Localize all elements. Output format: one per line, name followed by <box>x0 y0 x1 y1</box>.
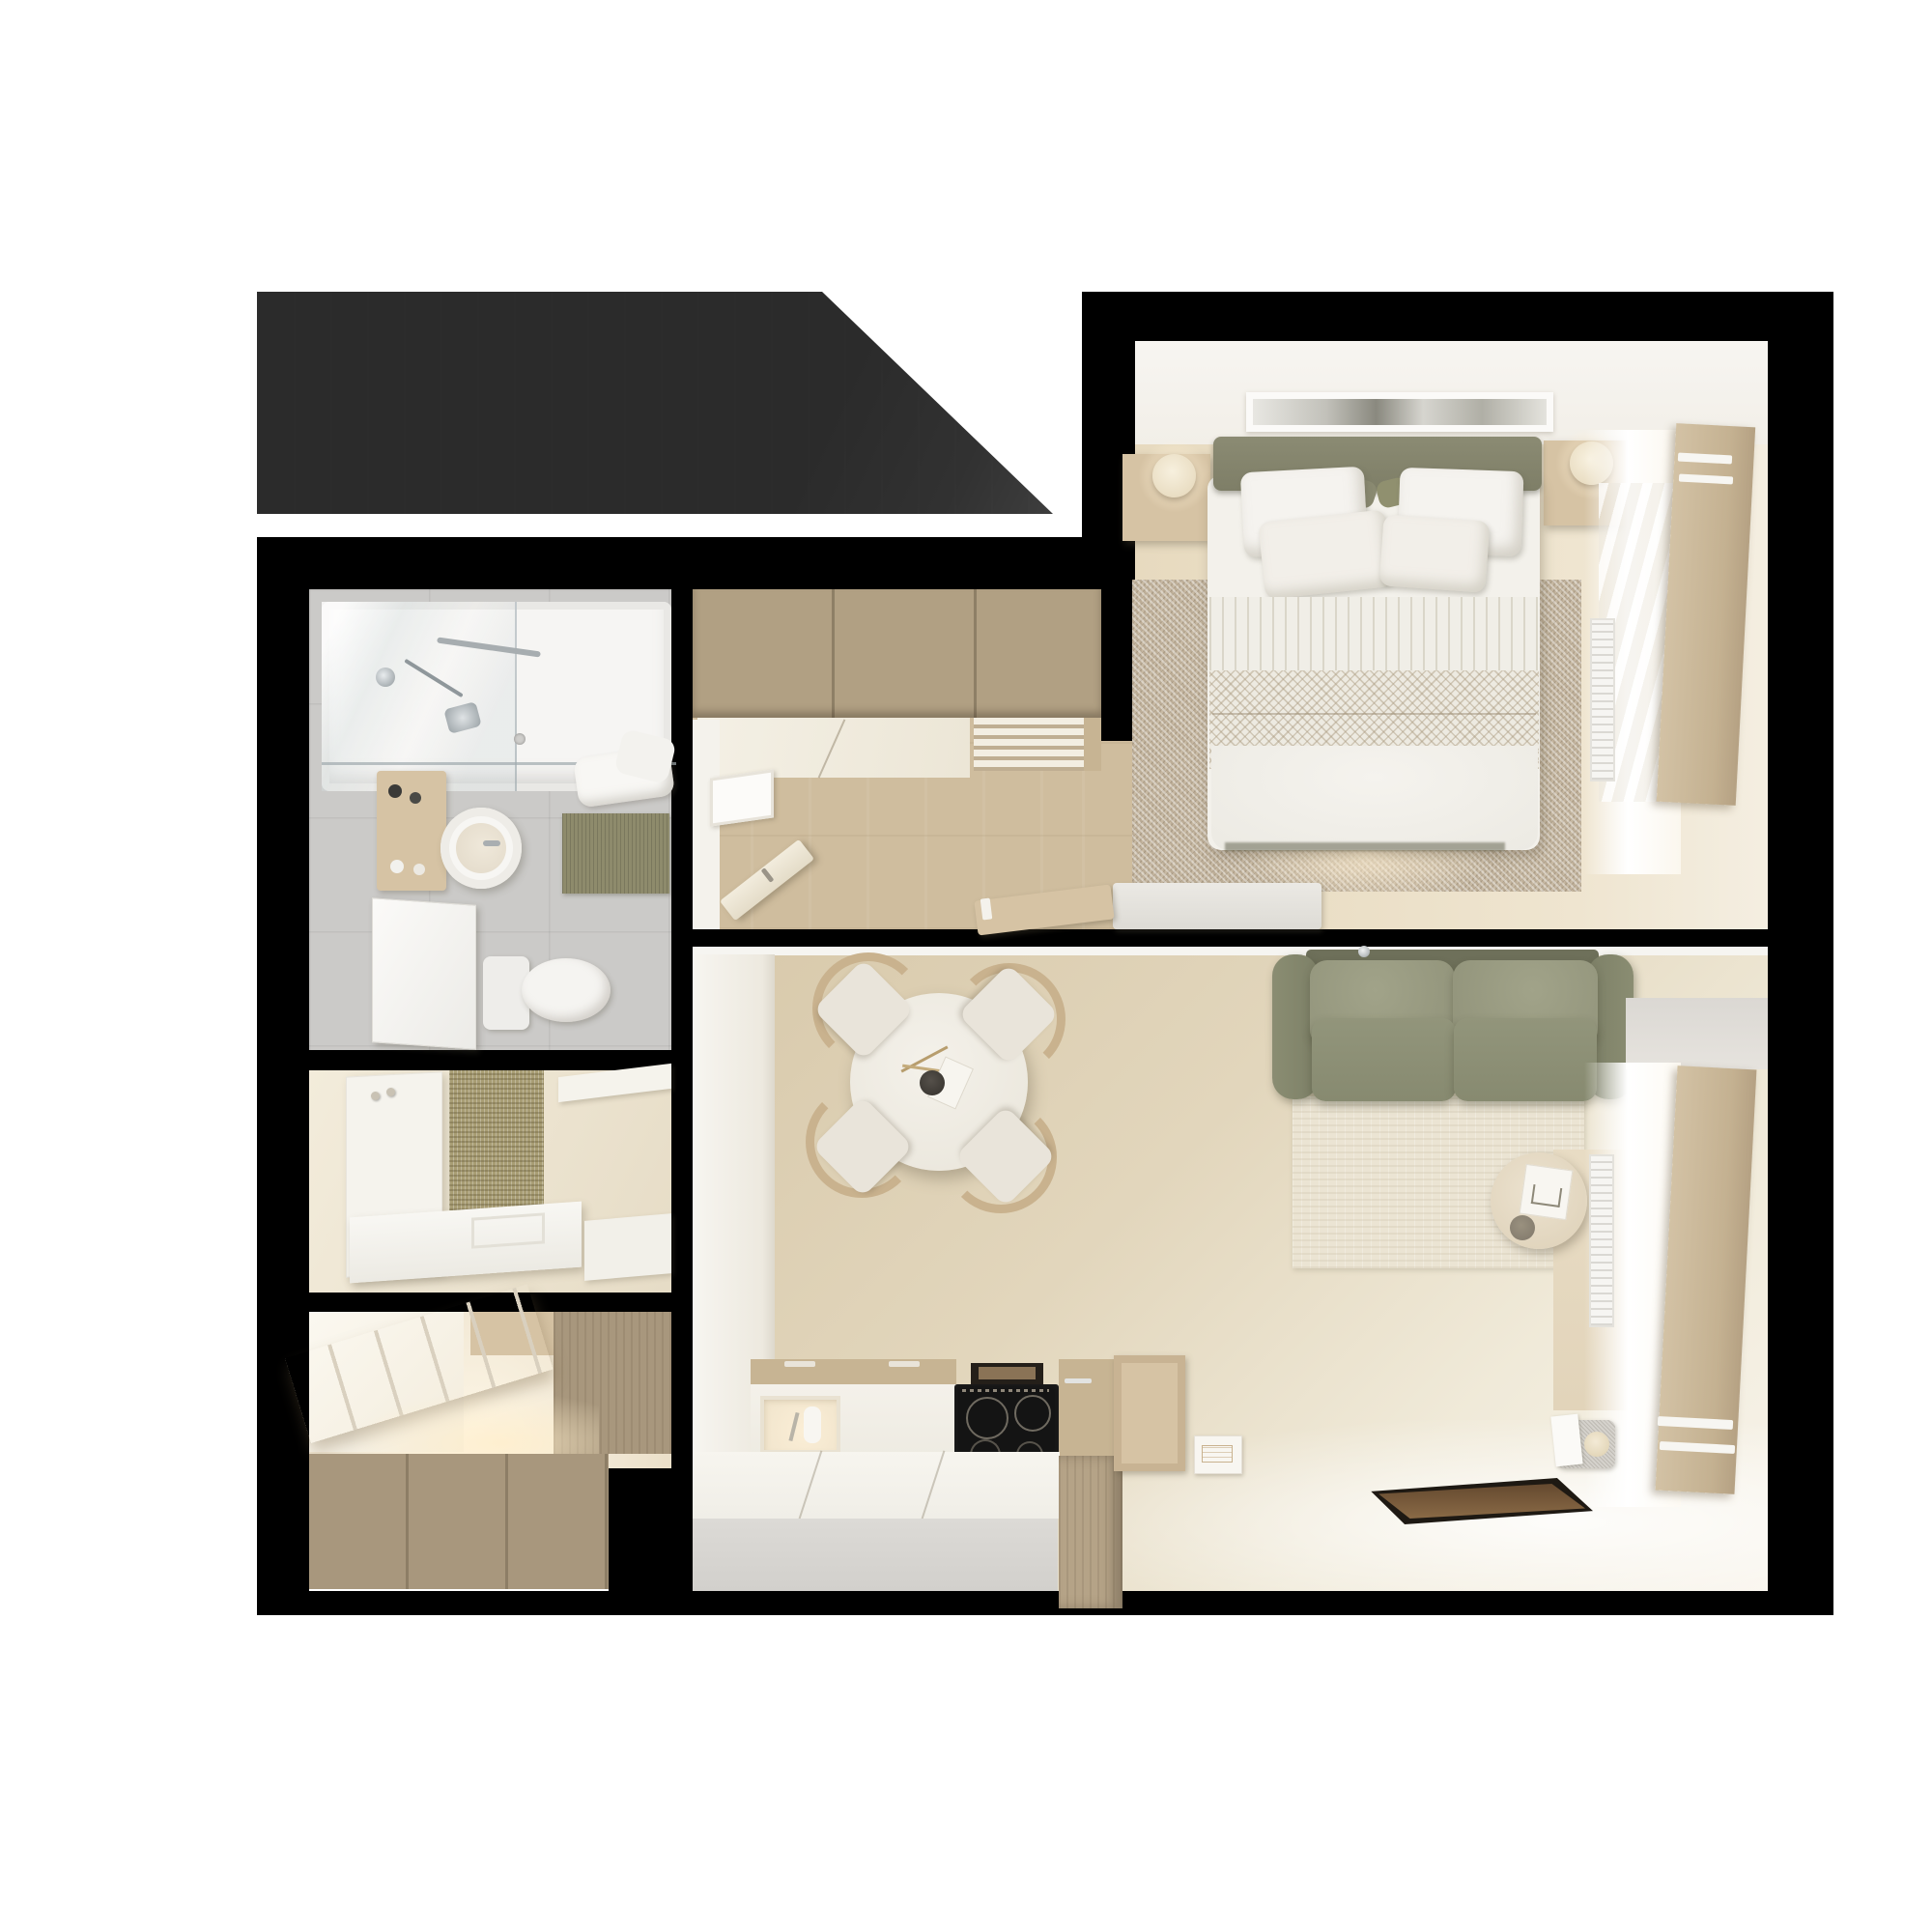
hall-ledge-right <box>584 1213 671 1281</box>
bed-foot-shadow <box>1225 842 1505 851</box>
bed-duvet-bottom <box>1211 746 1538 850</box>
kitchen-sink-niche <box>760 1396 840 1454</box>
closet-base-cabinets <box>309 1454 609 1589</box>
cabinet-handle-icon <box>784 1361 815 1367</box>
living-window-radiator <box>1589 1154 1614 1327</box>
plate-rack-side <box>1084 718 1101 771</box>
bedroom-window-radiator <box>1590 618 1615 781</box>
cabinet-handle-icon-2 <box>889 1361 920 1367</box>
floor-plan-canvas <box>0 0 1932 1932</box>
wall-mid-horizontal <box>257 537 1135 589</box>
kitchen-wood-counter-top <box>751 1359 956 1384</box>
wall-spine-vertical <box>671 589 693 1591</box>
hall-bench-frame <box>471 1212 545 1248</box>
blanket-fold-line <box>1212 713 1536 715</box>
kitchen-counter-slabs <box>693 1452 1060 1519</box>
peninsula-top-recess <box>1114 1355 1185 1471</box>
table-cup <box>920 1070 945 1095</box>
pillow-front-left <box>1258 509 1393 599</box>
dining-chair-se <box>949 1097 1065 1213</box>
bath-mat-texture <box>562 813 669 894</box>
basin-bowl <box>456 823 506 873</box>
artwork-image <box>1253 399 1547 425</box>
kitchen-counter-front-gray <box>693 1519 1058 1591</box>
jute-runner-rug <box>449 1070 544 1210</box>
toilet-bowl <box>522 958 611 1022</box>
mirror-door-panel <box>372 897 476 1050</box>
corridor-framed-panel <box>710 769 774 826</box>
wall-bath-hall-divider <box>257 1050 693 1070</box>
coat-hook-icon <box>371 1092 380 1100</box>
foot-bench <box>1113 883 1321 929</box>
plate-rack <box>974 718 1084 771</box>
sofa-seat-cushion-right <box>1454 1018 1597 1101</box>
sofa-seat-cushion-left <box>1312 1018 1456 1101</box>
cabinet-handle-icon-3 <box>1065 1378 1092 1383</box>
cooktop-controls-icon <box>962 1389 1049 1392</box>
terrace-roof-area <box>257 292 1053 514</box>
wall-closet-notch <box>609 1468 693 1591</box>
burner-icon-2 <box>1014 1395 1051 1432</box>
toiletry-bottle-dark-2 <box>410 792 421 804</box>
stone-object-knob-icon <box>1584 1432 1609 1457</box>
wall-left-exterior <box>257 537 309 1615</box>
pillow-front-right <box>1379 514 1491 592</box>
book-sketch-icon <box>1531 1184 1562 1207</box>
kitchen-counter-band <box>697 718 970 778</box>
wall-bedroom-top <box>1082 292 1833 341</box>
burner-icon <box>966 1397 1009 1439</box>
toiletry-jar-white <box>390 860 404 873</box>
paper-sheets <box>1550 1414 1582 1467</box>
coat-hook-icon-2 <box>386 1088 395 1096</box>
paper-box-sketch-icon <box>1202 1445 1233 1463</box>
dining-chair-sw <box>806 1090 922 1206</box>
kitchen-peninsula-wood <box>1059 1456 1122 1608</box>
vent-wood-inlay <box>979 1367 1036 1379</box>
sink-basin <box>804 1406 821 1443</box>
wall-bottom-exterior <box>257 1591 1833 1615</box>
lamp-left <box>1152 454 1196 497</box>
kitchen-upper-cabinets <box>693 589 1101 718</box>
living-wall-face-gray <box>1626 998 1768 1069</box>
toiletry-bottle-dark <box>388 784 402 798</box>
vanity-shelf <box>377 771 446 891</box>
wall-right-exterior <box>1768 292 1833 1615</box>
faucet-icon <box>483 840 500 846</box>
dining-chair-ne <box>950 955 1065 1071</box>
toiletry-jar-white-2 <box>413 864 425 875</box>
bed-duvet-striped <box>1209 597 1538 678</box>
dining-chair-nw <box>805 952 921 1068</box>
shower-head-icon <box>376 668 395 687</box>
side-table-cup <box>1510 1215 1535 1240</box>
wall-thin-living-divider <box>693 929 1768 947</box>
tub-drain <box>514 733 526 745</box>
sofa-chrome-fitting-icon <box>1358 946 1370 957</box>
kitchen-wood-front-right <box>1059 1359 1121 1456</box>
